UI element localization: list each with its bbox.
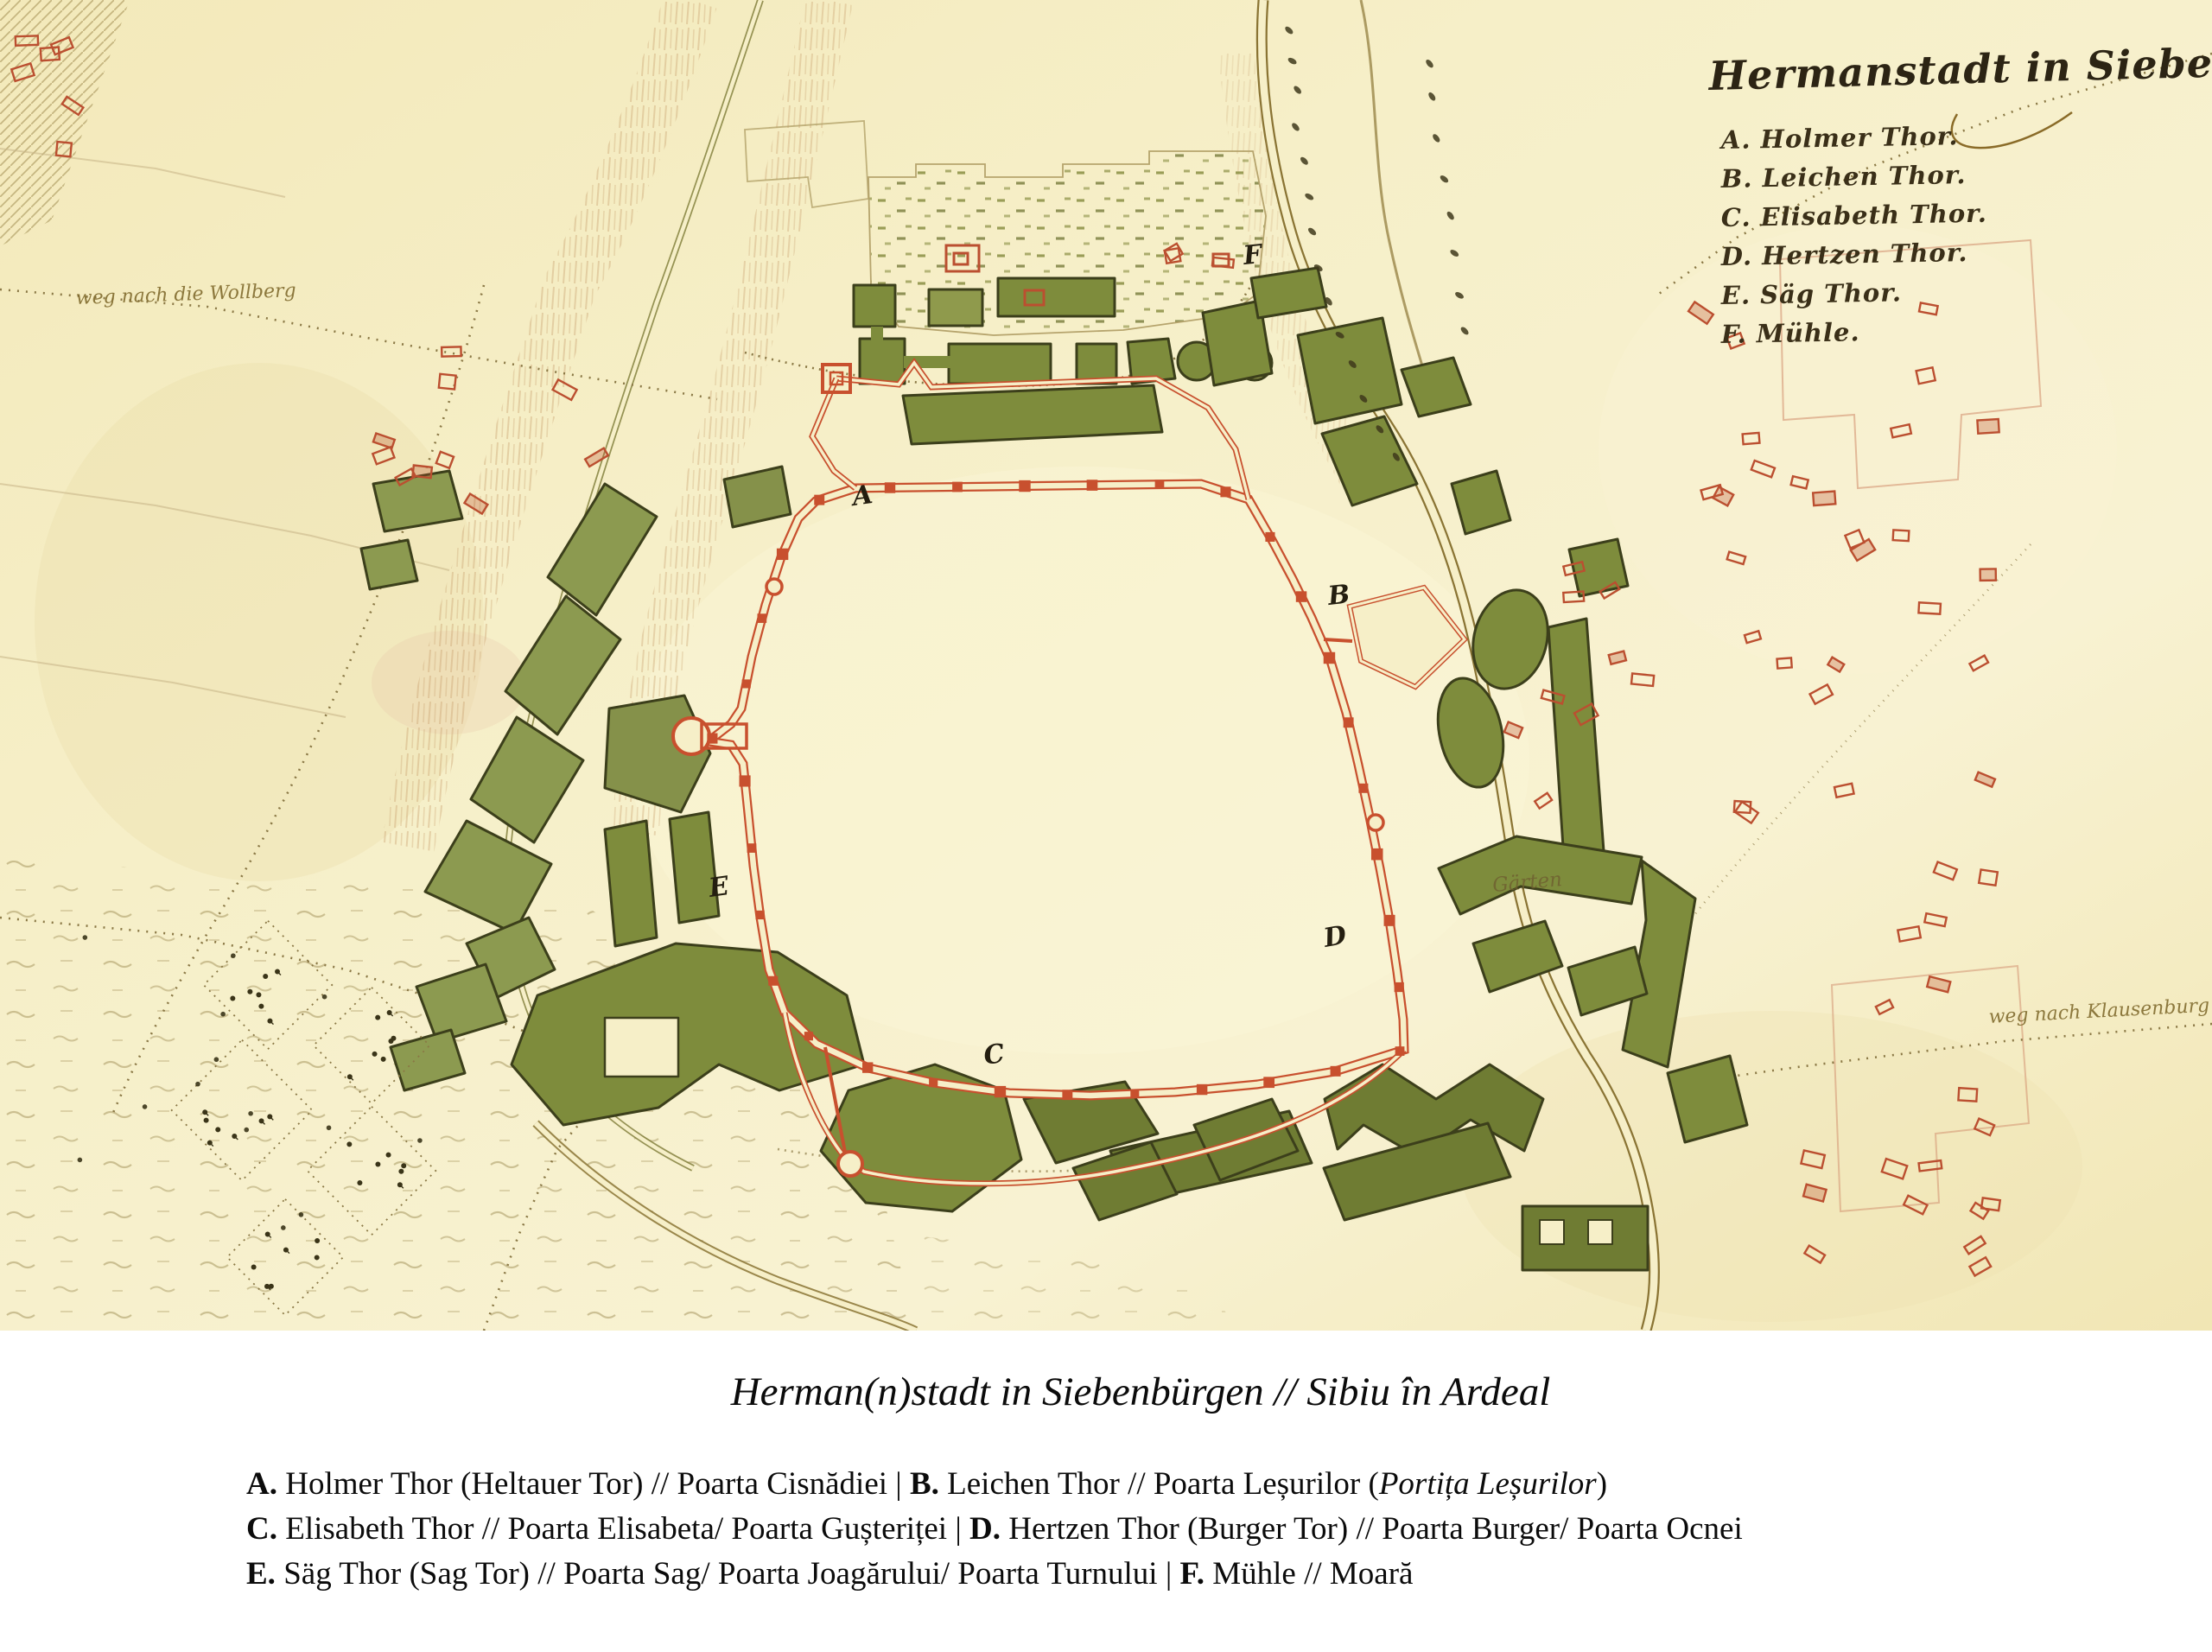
wall-tower [1296, 591, 1306, 601]
tree-dot [372, 1052, 378, 1057]
map-svg: A B C D E F Hermanstadt in Siebenbürgen.… [0, 0, 2212, 1331]
caption-segment: A. [246, 1466, 277, 1502]
tree-dot [204, 1118, 209, 1123]
caption-line: C. Elisabeth Thor // Poarta Elisabeta/ P… [246, 1507, 1743, 1552]
wall-tower [1130, 1090, 1139, 1098]
tree-dot [375, 1015, 380, 1020]
wall-tower [1395, 982, 1404, 992]
tree-dot [231, 953, 236, 958]
wall-tower [1331, 1066, 1341, 1077]
map-image: A B C D E F Hermanstadt in Siebenbürgen.… [0, 0, 2212, 1331]
legend-item-f: F. Mühle. [1720, 317, 1860, 349]
tree-dot [251, 1265, 257, 1270]
wall-tower [1371, 848, 1383, 861]
caption-segment: Hertzen Thor (Burger Tor) // Poarta Burg… [1001, 1511, 1743, 1547]
tree-dot [346, 1141, 352, 1147]
house-plot [1813, 492, 1835, 505]
tree-dot [391, 1036, 396, 1041]
caption-segment: Mühle // Moară [1205, 1556, 1413, 1592]
caption-block: Herman(n)stadt in Siebenbürgen // Sibiu … [0, 1331, 2212, 1652]
wall-tower [755, 911, 764, 919]
wall-tower [1384, 915, 1395, 926]
wall-tower [739, 775, 750, 786]
caption-segment: C. [246, 1511, 277, 1547]
tree-dot [281, 1225, 286, 1230]
tree-dot [248, 1111, 253, 1116]
wall-tower [1197, 1084, 1207, 1095]
caption-segment: Portița Leșurilor [1379, 1466, 1597, 1502]
wall-tower [1087, 480, 1098, 491]
caption-segment: ) [1597, 1466, 1607, 1502]
caption-line: A. Holmer Thor (Heltauer Tor) // Poarta … [246, 1462, 1743, 1507]
tree-dot [322, 994, 327, 1000]
caption-line: E. Säg Thor (Sag Tor) // Poarta Sag/ Poa… [246, 1552, 1743, 1597]
tree-dot [256, 992, 261, 997]
tree-dot [263, 974, 268, 979]
legend-item-c: C. Elisabeth Thor. [1721, 199, 1988, 232]
scanned-map-page: A B C D E F Hermanstadt in Siebenbürgen.… [0, 0, 2212, 1652]
tree-dot [244, 1128, 249, 1133]
wall-tower [814, 495, 824, 505]
gate-letter-c: C [982, 1039, 1007, 1071]
wall-tower [1062, 1090, 1072, 1100]
gate-round-tower [838, 1152, 862, 1176]
wall-tower [862, 1062, 873, 1072]
wall-tower [1344, 717, 1354, 728]
wall-tower [885, 482, 895, 492]
legend-item-d: D. Hertzen Thor. [1720, 238, 1968, 271]
legend-item-a: A. Holmer Thor. [1719, 121, 1959, 155]
tree-dot [357, 1180, 362, 1185]
wall-tower [1358, 784, 1368, 793]
tree-dot [398, 1169, 404, 1174]
tree-dot [386, 1153, 391, 1158]
tree-dot [327, 1125, 332, 1130]
house-plot [1977, 419, 1999, 434]
tree-dot [315, 1238, 320, 1243]
wall-tower [1019, 480, 1030, 492]
wall-tower [757, 613, 766, 623]
tree-dot [220, 1012, 226, 1017]
wall-tower [777, 549, 788, 560]
legend-item-b: B. Leichen Thor. [1720, 160, 1967, 194]
wall-tower [804, 1032, 813, 1040]
tree-dot [143, 1104, 148, 1109]
wall-tower [1265, 532, 1274, 542]
tree-dot [401, 1163, 406, 1168]
caption-legend: A. Holmer Thor (Heltauer Tor) // Poarta … [246, 1462, 1743, 1597]
wall-tower [995, 1086, 1006, 1097]
tree-dot [78, 1158, 83, 1163]
wall-round-tower [1368, 815, 1383, 830]
tree-dot [299, 1212, 304, 1217]
tree-dot [375, 1162, 380, 1167]
caption-segment: Holmer Thor (Heltauer Tor) // Poarta Cis… [277, 1466, 910, 1502]
wall-tower [1324, 652, 1335, 664]
tree-dot [381, 1057, 386, 1062]
tree-dot [315, 1255, 320, 1260]
wall-tower [768, 976, 778, 986]
wall-tower [742, 679, 751, 688]
legend-item-e: E. Säg Thor. [1720, 277, 1903, 310]
caption-segment: B. [910, 1466, 939, 1502]
caption-title: Herman(n)stadt in Siebenbürgen // Sibiu … [484, 1369, 1797, 1415]
wall-tower [1220, 486, 1230, 497]
tree-dot [230, 995, 235, 1001]
wall-tower [747, 843, 757, 853]
wall-tower [1395, 1046, 1405, 1056]
house-plot [1980, 569, 1996, 580]
tree-dot [247, 989, 252, 994]
caption-segment: Säg Thor (Sag Tor) // Poarta Sag/ Poarta… [276, 1556, 1180, 1592]
wall-tower [952, 482, 963, 492]
wall-tower [929, 1078, 938, 1087]
caption-segment: Leichen Thor // Poarta Leșurilor ( [939, 1466, 1379, 1502]
tree-dot [83, 935, 88, 940]
paper-blotch [1460, 1011, 2082, 1322]
tree-dot [215, 1127, 220, 1132]
wall-round-tower [766, 579, 782, 594]
caption-segment: F. [1180, 1556, 1205, 1592]
caption-segment: D. [969, 1511, 1001, 1547]
tree-dot [258, 1004, 264, 1009]
tree-dot [214, 1057, 219, 1062]
gate-letter-b: B [1325, 579, 1351, 612]
caption-segment: Elisabeth Thor // Poarta Elisabeta/ Poar… [277, 1511, 969, 1547]
wall-tower [707, 734, 717, 744]
tree-dot [417, 1138, 423, 1143]
tree-dot [195, 1082, 200, 1087]
wall-tower [1263, 1077, 1274, 1088]
tree-dot [269, 1284, 274, 1289]
caption-segment: E. [246, 1556, 276, 1592]
wall-tower [1155, 480, 1165, 489]
